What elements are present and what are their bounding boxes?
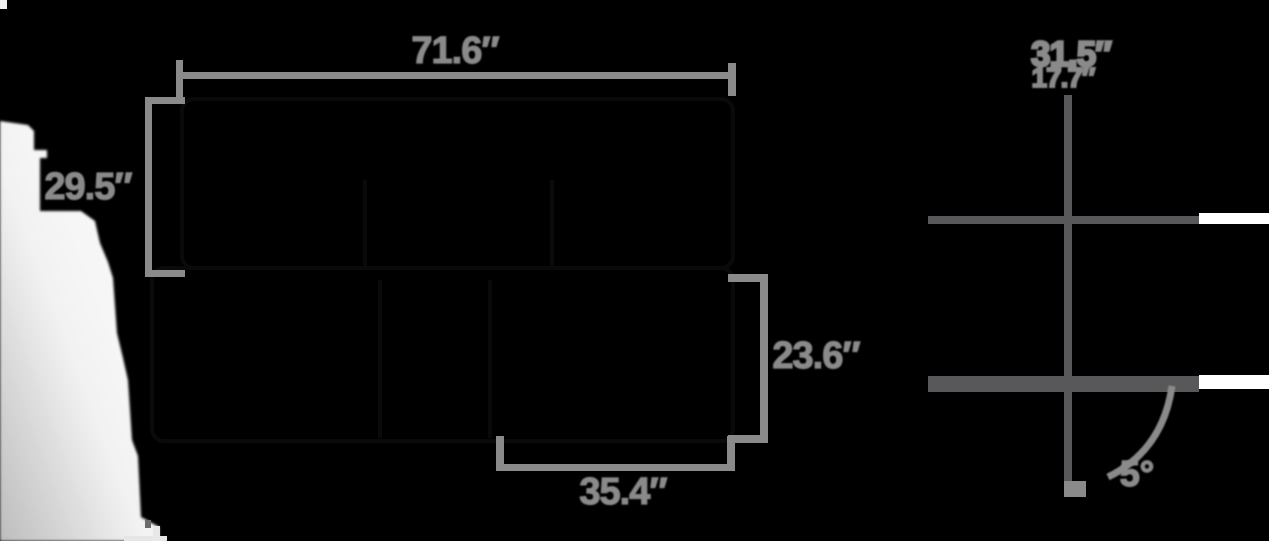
svg-text:35.4″: 35.4″ [579, 471, 667, 513]
svg-text:23.6″: 23.6″ [772, 335, 860, 377]
svg-text:29.5″: 29.5″ [44, 166, 132, 208]
svg-text:17.7″: 17.7″ [1032, 62, 1095, 93]
svg-text:71.6″: 71.6″ [411, 30, 499, 72]
svg-text:5°: 5° [1120, 453, 1154, 494]
